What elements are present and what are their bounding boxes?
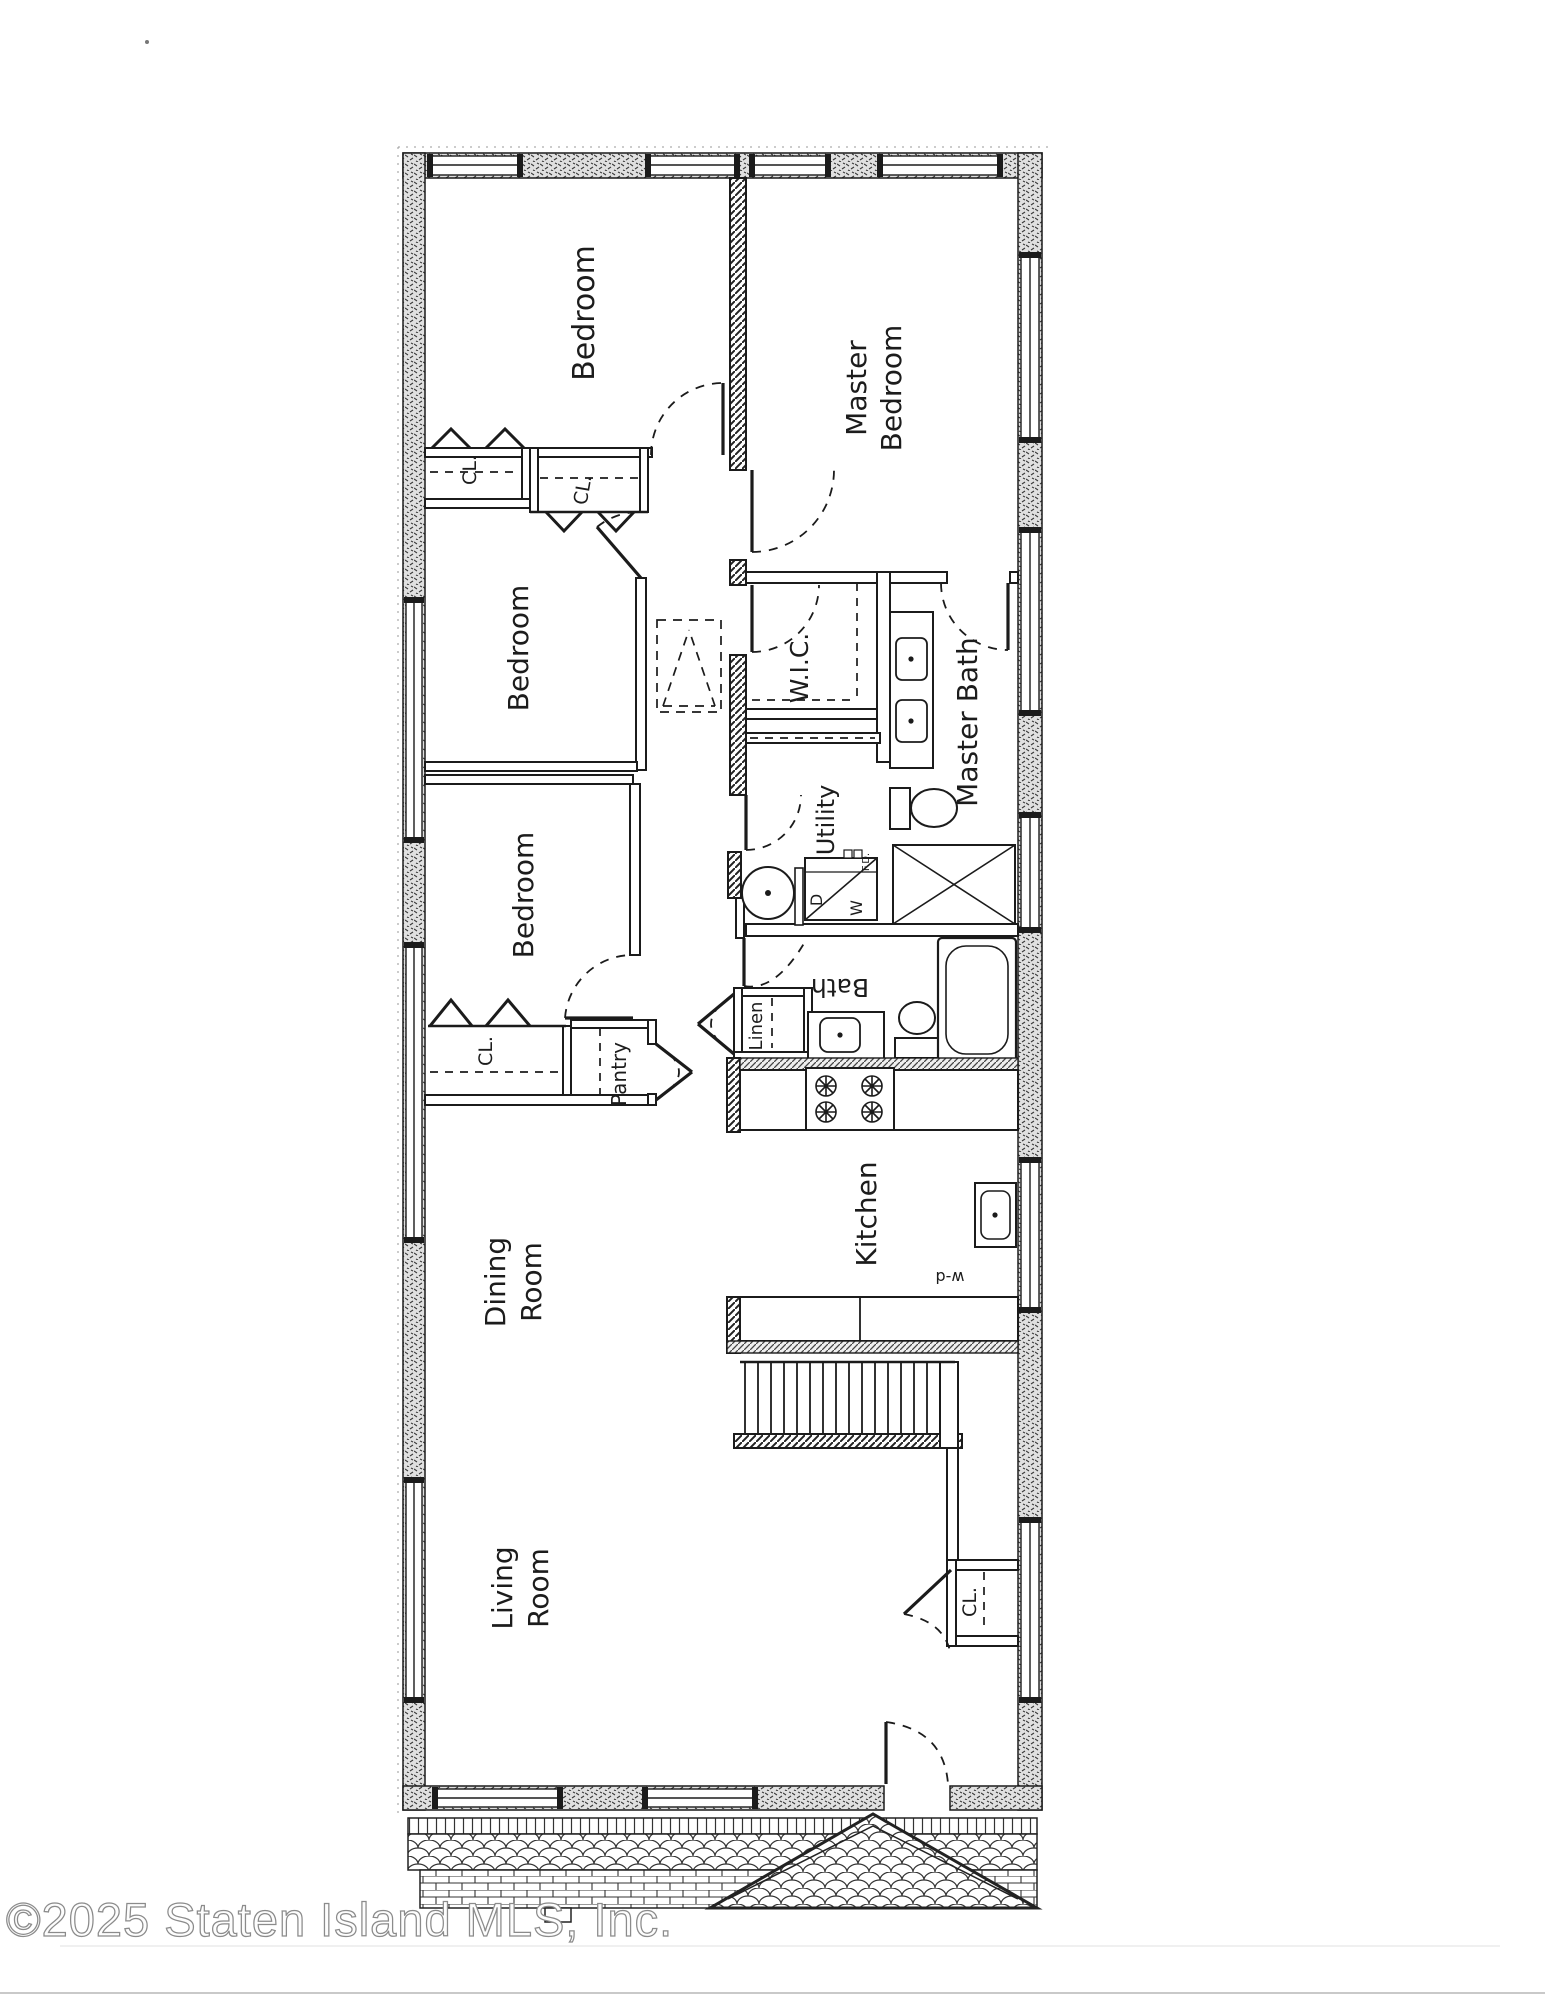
bedroom2-door-leaf: [597, 527, 641, 578]
wall-bath-top: [746, 924, 1018, 936]
wall-linen-top: [734, 988, 812, 996]
kitchen-sink-drain: [992, 1212, 997, 1217]
entry-door-arc: [886, 1722, 948, 1784]
floorplan-scan-page: Bedroom Master Bedroom Bedroom Bedroom W…: [0, 0, 1545, 2000]
wall-entrycloset-bottom: [947, 1636, 1018, 1646]
window-top-3: [749, 154, 831, 177]
floorplan-drawing: Bedroom Master Bedroom Bedroom Bedroom W…: [0, 0, 1545, 2000]
linen-door-wedge: [698, 994, 734, 1054]
wall-kitchen-stub: [727, 1058, 740, 1132]
window-top-2: [645, 154, 740, 177]
dishwasher-label: w-d: [935, 1268, 964, 1287]
living-room-label-line1: Living: [486, 1546, 519, 1629]
wall-bottom-right-seg: [950, 1786, 1042, 1810]
dining-room-label-line1: Dining: [479, 1237, 512, 1327]
window-right-3: [1019, 812, 1041, 933]
wall-bedroom2-right: [636, 578, 646, 770]
wall-stairs-right: [940, 1362, 958, 1448]
kitchen-island: [740, 1297, 1018, 1341]
bath-toilet-bowl: [899, 1002, 935, 1034]
closetA-label: CL.: [459, 455, 481, 485]
wall-divider-23a: [425, 762, 637, 771]
wall-closetC-right: [563, 1026, 571, 1098]
closetC-bifold-doors: [430, 1000, 530, 1026]
floor-drain-label: F.D.: [861, 853, 872, 871]
attic-hatch-box: [657, 620, 721, 712]
window-right-5: [1019, 1517, 1041, 1703]
elevation-tick-course: [408, 1818, 1037, 1834]
wall-bedroom3-right: [630, 784, 640, 955]
wall-pantry-top: [571, 1020, 655, 1028]
dining-room-label-line2: Room: [515, 1242, 548, 1322]
window-right-4: [1019, 1157, 1041, 1313]
window-left-2: [404, 942, 424, 1243]
kitchen-cooktop: [806, 1068, 894, 1130]
closetB-bifold-doors: [546, 512, 634, 531]
wall-divider-23b: [425, 775, 633, 784]
wall-pantry-right-lower: [648, 1094, 656, 1105]
wall-linen-left: [734, 988, 742, 1060]
wic-label: W.I.C.: [785, 633, 814, 704]
wall-wic-bottom: [746, 709, 880, 719]
wall-closetA-bottom: [425, 499, 530, 508]
wall-hatched-seg2: [730, 560, 746, 585]
window-bottom-1: [432, 1787, 563, 1809]
window-top-4: [877, 154, 1003, 177]
window-right-1: [1019, 252, 1041, 443]
masterbath-vanity: [890, 612, 933, 768]
attic-access: [657, 620, 721, 712]
wall-entrycloset-top: [947, 1560, 1018, 1570]
master-bedroom-label-line1: Master: [840, 340, 873, 436]
pantry-door-wedge: [656, 1044, 692, 1100]
window-top-1: [427, 154, 523, 177]
staircase: [740, 1362, 955, 1434]
entrycloset-door-leaf: [904, 1570, 951, 1614]
masterbath-toilet-tank: [890, 788, 910, 829]
water-heater-vent: [765, 890, 771, 896]
utility-door-arc: [746, 795, 801, 850]
bath-toilet-tank: [895, 1038, 939, 1058]
wall-pantry-right-upper: [648, 1020, 656, 1044]
stairs-treads: [745, 1362, 940, 1434]
bath-door-arc: [744, 940, 806, 987]
wall-hatched-seg1: [730, 178, 746, 470]
closetC-label: CL.: [475, 1036, 497, 1066]
living-room-label-line2: Room: [522, 1548, 555, 1628]
window-bottom-2: [642, 1787, 758, 1809]
wall-hatched-seg3: [730, 655, 746, 795]
wall-master-bottom-left: [746, 572, 947, 583]
master-door-arc: [752, 470, 834, 552]
dryer-label: D: [807, 894, 826, 906]
wall-master-bottom-right: [1010, 572, 1018, 583]
master-bath-label: Master Bath: [951, 637, 984, 807]
wall-closetB-right: [640, 448, 648, 512]
master-bedroom-label-line2: Bedroom: [875, 325, 908, 452]
closetA-bifold-doors: [432, 429, 524, 448]
bath-tub-inner: [946, 946, 1008, 1054]
entry-closet-label: CL.: [959, 1587, 981, 1617]
masterbath-sink2-drain: [908, 718, 913, 723]
utility-divider-stub: [795, 868, 803, 925]
masterbath-sink1-drain: [908, 656, 913, 661]
wall-hatched-stub-utility: [728, 852, 741, 898]
wall-bath-left-stub: [736, 898, 744, 938]
bedroom-lower-label: Bedroom: [507, 832, 540, 959]
floor-drain-box1: [844, 850, 852, 858]
window-left-1: [404, 597, 424, 843]
bedroom1-door-arc: [651, 383, 723, 455]
wall-closetB-left: [530, 448, 538, 512]
closetB-label: CL.: [570, 473, 597, 506]
kitchen-island-edge: [727, 1341, 1018, 1353]
bath-sink-drain: [837, 1032, 842, 1037]
bedroom-middle-label: Bedroom: [502, 585, 535, 712]
bedroom-top-label: Bedroom: [567, 245, 602, 381]
window-left-3: [404, 1477, 424, 1703]
bath-label: Bath: [811, 973, 869, 1002]
linen-label: Linen: [746, 1002, 767, 1051]
attic-ladder-icon: [663, 630, 715, 706]
washer-label: W: [847, 900, 866, 916]
window-right-2: [1019, 527, 1041, 716]
wall-stairs-bottom: [734, 1434, 962, 1448]
pantry-label: Pantry: [607, 1042, 631, 1106]
mls-copyright-watermark: ©2025 Staten Island MLS, Inc.: [6, 1893, 673, 1946]
wall-below-stairs: [947, 1448, 958, 1562]
kitchen-label: Kitchen: [850, 1161, 883, 1266]
utility-label: Utility: [812, 785, 840, 856]
entrycloset-door-arc: [904, 1614, 951, 1656]
bedroom3-door-arc: [565, 955, 633, 1018]
